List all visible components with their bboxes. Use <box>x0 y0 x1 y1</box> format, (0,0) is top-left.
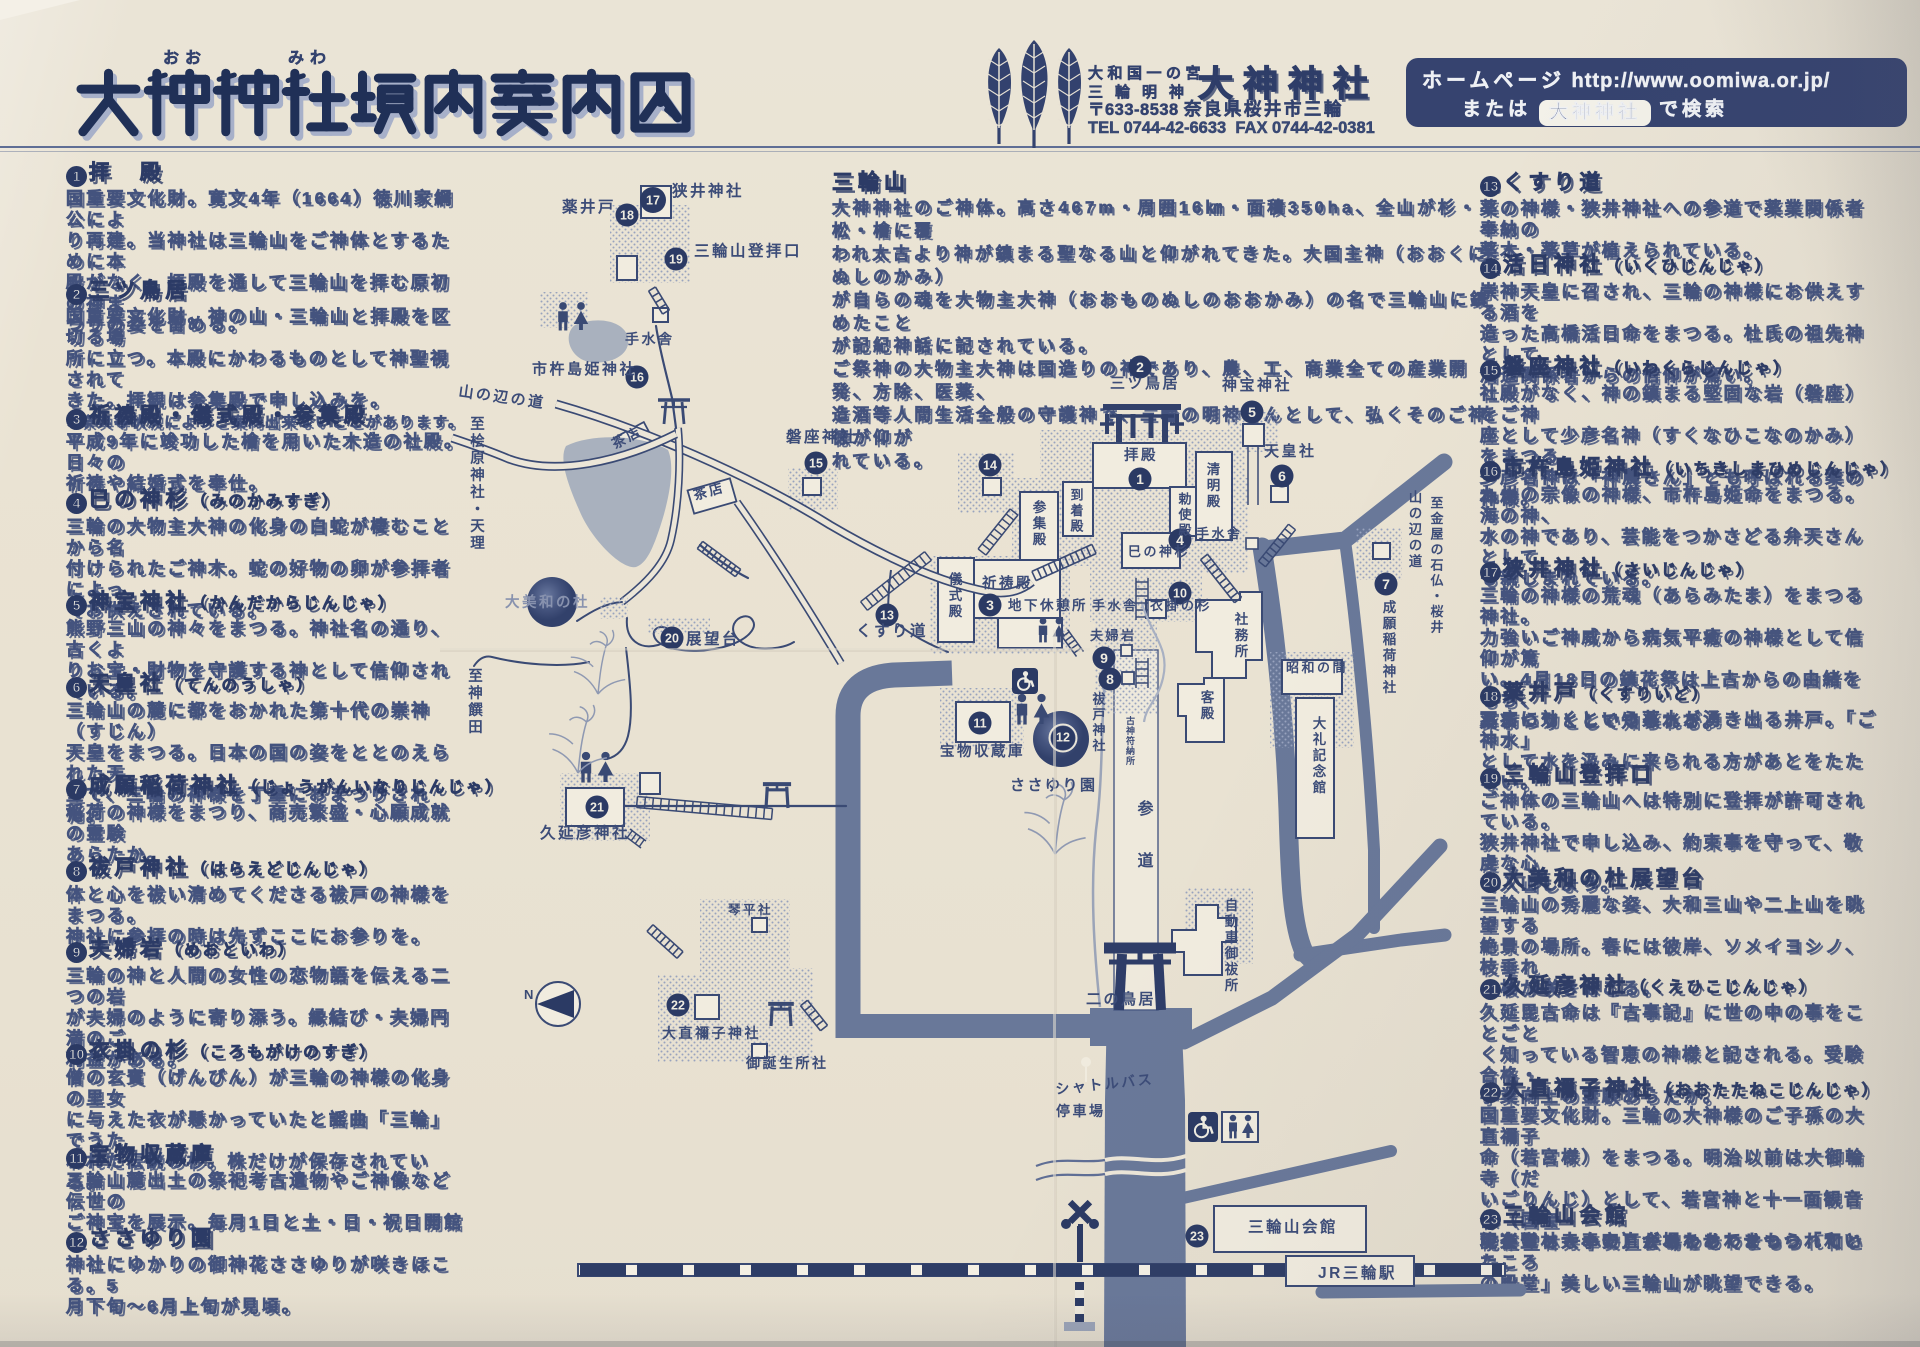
svg-text:大礼記念館: 大礼記念館 <box>1311 715 1328 796</box>
svg-text:山の辺の道: 山の辺の道 <box>1407 490 1423 570</box>
svg-text:手水舎: 手水舎 <box>1092 598 1139 613</box>
svg-text:17: 17 <box>646 194 660 208</box>
svg-text:20: 20 <box>665 632 679 646</box>
svg-text:磐座神社: 磐座神社 <box>786 427 858 446</box>
svg-text:宝物収蔵庫: 宝物収蔵庫 <box>940 742 1025 760</box>
svg-text:三輪山登拝口: 三輪山登拝口 <box>694 241 802 260</box>
svg-text:祓戸神社: 祓戸神社 <box>1091 691 1107 754</box>
svg-text:清明殿: 清明殿 <box>1205 461 1222 510</box>
svg-text:琴平社: 琴平社 <box>727 902 773 917</box>
svg-text:天皇社: 天皇社 <box>1264 442 1317 460</box>
svg-text:19: 19 <box>669 253 683 267</box>
svg-text:18: 18 <box>620 209 634 223</box>
svg-text:22: 22 <box>671 999 685 1013</box>
svg-text:参: 参 <box>1135 799 1154 818</box>
svg-text:社務所: 社務所 <box>1233 611 1250 660</box>
svg-text:3: 3 <box>986 597 994 613</box>
svg-text:至神饌田: 至神饌田 <box>466 668 482 736</box>
svg-text:狭井神社: 狭井神社 <box>671 181 744 200</box>
svg-text:手水舎: 手水舎 <box>1196 526 1243 541</box>
svg-text:三ツ鳥居: 三ツ鳥居 <box>1110 374 1180 392</box>
svg-text:至桧原神社・天理: 至桧原神社・天理 <box>468 416 485 552</box>
svg-text:15: 15 <box>809 457 823 471</box>
svg-text:二の鳥居: 二の鳥居 <box>1086 990 1156 1008</box>
svg-text:久延彦神社: 久延彦神社 <box>540 823 630 842</box>
svg-text:21: 21 <box>590 801 604 815</box>
svg-text:御誕生所社: 御誕生所社 <box>745 1055 829 1071</box>
svg-text:停車場: 停車場 <box>1056 1103 1106 1119</box>
svg-text:道: 道 <box>1135 851 1154 870</box>
svg-text:13: 13 <box>880 609 894 623</box>
svg-text:6: 6 <box>1278 468 1286 484</box>
svg-text:11: 11 <box>973 717 986 731</box>
svg-text:12: 12 <box>1056 731 1070 745</box>
svg-text:山の辺の道: 山の辺の道 <box>457 382 546 412</box>
svg-text:JR三輪駅: JR三輪駅 <box>1318 1263 1397 1282</box>
svg-text:至金屋の石仏・桜井: 至金屋の石仏・桜井 <box>1429 496 1445 636</box>
svg-text:神宝神社: 神宝神社 <box>1222 376 1292 394</box>
svg-text:23: 23 <box>1190 1230 1204 1244</box>
svg-text:衣掛の杉: 衣掛の杉 <box>1150 598 1212 613</box>
svg-text:自動車御祓所: 自動車御祓所 <box>1223 897 1240 994</box>
svg-text:祈祷殿: 祈祷殿 <box>982 574 1033 592</box>
svg-text:地下休憩所: 地下休憩所 <box>1008 597 1088 613</box>
svg-text:巳の神杉: 巳の神杉 <box>1128 544 1190 559</box>
svg-text:儀式殿: 儀式殿 <box>947 571 964 620</box>
svg-text:昭和の間: 昭和の間 <box>1286 660 1348 675</box>
svg-text:14: 14 <box>983 459 997 473</box>
svg-text:7: 7 <box>1382 576 1390 592</box>
svg-text:展望台: 展望台 <box>686 629 740 648</box>
svg-text:8: 8 <box>1106 671 1114 687</box>
svg-text:手水舎: 手水舎 <box>625 331 675 347</box>
svg-text:成願稲荷神社: 成願稲荷神社 <box>1381 599 1398 696</box>
svg-text:くすり道: くすり道 <box>856 621 928 640</box>
svg-text:拝殿: 拝殿 <box>1124 446 1158 464</box>
svg-text:客殿: 客殿 <box>1199 689 1216 722</box>
svg-text:大直禰子神社: 大直禰子神社 <box>662 1025 761 1041</box>
svg-text:2: 2 <box>1136 359 1144 375</box>
svg-text:古神符納所: 古神符納所 <box>1125 715 1135 766</box>
svg-text:1: 1 <box>1136 471 1144 487</box>
svg-text:参集殿: 参集殿 <box>1031 499 1048 548</box>
svg-text:大美和の杜: 大美和の杜 <box>505 593 590 611</box>
svg-text:夫婦岩: 夫婦岩 <box>1090 628 1137 643</box>
svg-text:勅使殿: 勅使殿 <box>1177 491 1193 538</box>
svg-text:9: 9 <box>1100 650 1108 666</box>
svg-text:市杵島姫神社: 市杵島姫神社 <box>532 360 637 378</box>
svg-text:三輪山会館: 三輪山会館 <box>1248 1217 1338 1236</box>
svg-text:N: N <box>524 987 533 1002</box>
svg-text:到着殿: 到着殿 <box>1069 488 1085 535</box>
svg-text:薬井戸: 薬井戸 <box>561 197 616 216</box>
svg-text:5: 5 <box>1248 404 1256 420</box>
